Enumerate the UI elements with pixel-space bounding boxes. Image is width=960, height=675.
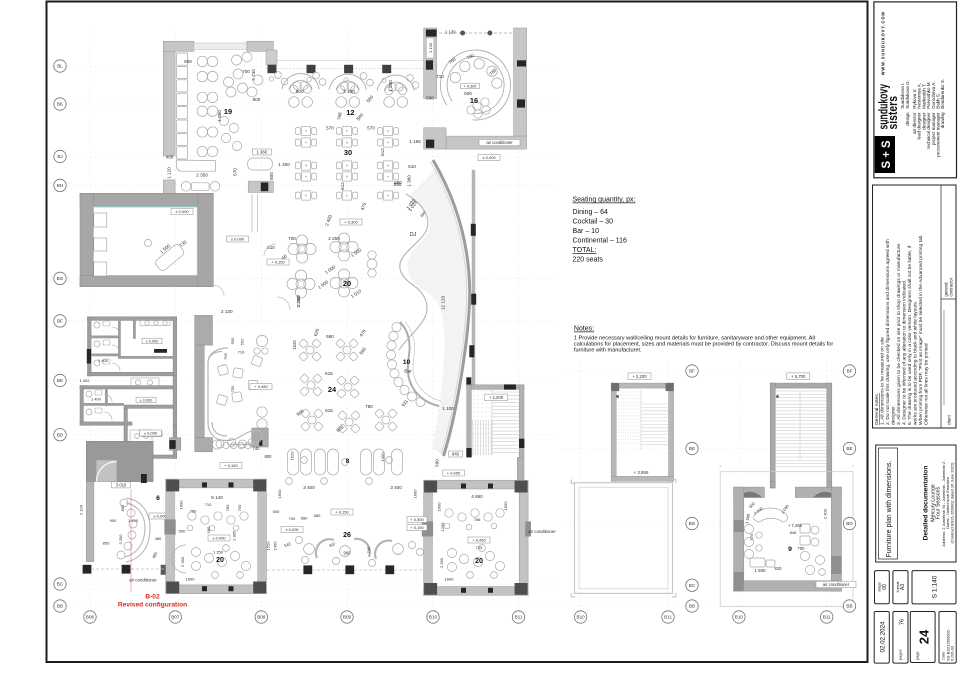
svg-text:580: 580 bbox=[314, 513, 321, 518]
svg-text:6: 6 bbox=[156, 495, 160, 502]
svg-text:TOTAL:: TOTAL: bbox=[573, 247, 597, 254]
svg-text:800: 800 bbox=[265, 454, 273, 459]
svg-text:892: 892 bbox=[120, 504, 125, 511]
svg-text:B06: B06 bbox=[86, 615, 95, 620]
svg-text:± 0,000: ± 0,000 bbox=[482, 155, 496, 160]
svg-text:± 0,000: ± 0,000 bbox=[140, 399, 153, 403]
svg-text:client: client bbox=[947, 414, 952, 425]
svg-text:2 280: 2 280 bbox=[439, 557, 444, 568]
svg-text:Continental – 116: Continental – 116 bbox=[573, 238, 627, 245]
svg-text:19: 19 bbox=[224, 107, 232, 116]
svg-text:B09: B09 bbox=[343, 615, 352, 620]
svg-text:+ 0,300: + 0,300 bbox=[410, 517, 424, 522]
svg-text:air conditioner: air conditioner bbox=[129, 578, 157, 583]
svg-text:+ 0,450: + 0,450 bbox=[447, 471, 461, 476]
svg-text:furniture with manufacturer.: furniture with manufacturer. bbox=[574, 348, 642, 354]
svg-text:BB: BB bbox=[57, 604, 63, 609]
svg-text:00: 00 bbox=[882, 584, 888, 590]
svg-text:BC: BC bbox=[57, 582, 64, 587]
svg-text:780: 780 bbox=[365, 404, 373, 409]
svg-text:26: 26 bbox=[343, 532, 351, 539]
svg-text:BB: BB bbox=[689, 604, 695, 609]
svg-text:2 250: 2 250 bbox=[296, 296, 301, 308]
svg-text:A3: A3 bbox=[900, 584, 906, 590]
svg-text:Detailed documentation: Detailed documentation bbox=[923, 466, 930, 541]
svg-text:1 385: 1 385 bbox=[232, 530, 237, 541]
svg-text:1 360: 1 360 bbox=[407, 175, 412, 187]
svg-text:B10: B10 bbox=[735, 615, 744, 620]
svg-text:B07: B07 bbox=[171, 615, 180, 620]
svg-text:615: 615 bbox=[325, 408, 333, 413]
svg-text:Cocktail – 30: Cocktail – 30 bbox=[573, 219, 614, 226]
svg-text:± 0,000: ± 0,000 bbox=[285, 527, 299, 532]
svg-text:580: 580 bbox=[301, 516, 308, 521]
svg-text:1 250: 1 250 bbox=[278, 162, 290, 167]
svg-text:1600: 1600 bbox=[277, 489, 282, 499]
svg-text:pages: pages bbox=[898, 649, 903, 660]
svg-text:3 010: 3 010 bbox=[116, 483, 127, 488]
svg-text:designer.: designer. bbox=[891, 405, 897, 425]
svg-text:design: design bbox=[905, 112, 910, 126]
svg-text:740: 740 bbox=[366, 546, 371, 553]
svg-text:+ 5,700: + 5,700 bbox=[791, 374, 806, 379]
svg-text:710: 710 bbox=[205, 502, 212, 507]
svg-text:1400: 1400 bbox=[380, 452, 385, 462]
svg-text:800: 800 bbox=[184, 59, 192, 64]
svg-text:2 130: 2 130 bbox=[221, 309, 233, 314]
svg-text:1520: 1520 bbox=[292, 340, 297, 350]
svg-text:1 100: 1 100 bbox=[442, 406, 454, 411]
svg-text:+ 0,300: + 0,300 bbox=[344, 220, 358, 225]
svg-text:612: 612 bbox=[380, 148, 385, 156]
svg-text:1 250: 1 250 bbox=[213, 550, 224, 555]
svg-text:740: 740 bbox=[253, 446, 261, 451]
svg-text:500: 500 bbox=[179, 529, 186, 534]
svg-text:750: 750 bbox=[237, 504, 242, 511]
svg-text:1 860: 1 860 bbox=[217, 110, 222, 122]
svg-text:+ 0,150: + 0,150 bbox=[224, 463, 238, 468]
svg-text:B10: B10 bbox=[577, 615, 586, 620]
svg-text:B11: B11 bbox=[664, 615, 672, 620]
svg-text:2. Do not scale this drawing,: 2. Do not scale this drawing, use only f… bbox=[885, 239, 891, 425]
svg-text:+ 3,955: + 3,955 bbox=[634, 470, 649, 475]
svg-text:30: 30 bbox=[344, 148, 352, 157]
svg-text:590: 590 bbox=[394, 180, 402, 185]
svg-text:BD: BD bbox=[689, 521, 696, 526]
svg-text:1 100: 1 100 bbox=[128, 518, 139, 523]
svg-text:BD: BD bbox=[846, 521, 853, 526]
svg-text:sisters: sisters bbox=[885, 96, 900, 130]
svg-text:Furniture plan with dimensions: Furniture plan with dimensions. bbox=[886, 461, 893, 558]
svg-text:20: 20 bbox=[343, 279, 351, 288]
svg-text:700: 700 bbox=[288, 236, 296, 241]
svg-text:700: 700 bbox=[289, 516, 296, 521]
svg-text:+ 0,300: + 0,300 bbox=[464, 85, 477, 89]
svg-text:+ 0,450: + 0,450 bbox=[472, 538, 486, 543]
svg-text:+ 0,150: + 0,150 bbox=[335, 510, 349, 515]
svg-text:± 0,000: ± 0,000 bbox=[212, 536, 226, 541]
svg-text:BF: BF bbox=[57, 319, 63, 324]
svg-text:Dining – 64: Dining – 64 bbox=[573, 209, 609, 216]
svg-text:1 Provide necessary wall/ceili: 1 Provide necessary wall/ceiling mount d… bbox=[574, 335, 815, 341]
svg-text:1 300: 1 300 bbox=[388, 80, 393, 92]
svg-text:610: 610 bbox=[408, 164, 416, 169]
svg-text:Revised configuration: Revised configuration bbox=[118, 602, 187, 609]
svg-text:3 400: 3 400 bbox=[303, 485, 315, 490]
svg-text:4. Designer to be informed of: 4. Designer to be informed of any altera… bbox=[901, 280, 907, 425]
svg-text:600: 600 bbox=[273, 509, 280, 514]
svg-text:900: 900 bbox=[110, 518, 117, 523]
svg-text:B08: B08 bbox=[257, 615, 266, 620]
svg-text:590: 590 bbox=[434, 459, 439, 467]
svg-text:± 0,000: ± 0,000 bbox=[146, 340, 159, 344]
svg-text:General notes:: General notes: bbox=[874, 393, 880, 425]
svg-text:710: 710 bbox=[238, 350, 245, 355]
svg-text:1520: 1520 bbox=[290, 451, 295, 461]
svg-text:9: 9 bbox=[788, 546, 792, 553]
svg-text:2 350: 2 350 bbox=[196, 173, 208, 178]
svg-text:1 600: 1 600 bbox=[755, 568, 767, 573]
svg-text:2 400: 2 400 bbox=[823, 508, 828, 519]
svg-text:+ 0,150: + 0,150 bbox=[410, 525, 424, 530]
svg-text:2 104: 2 104 bbox=[78, 504, 83, 515]
svg-text:550: 550 bbox=[230, 337, 235, 344]
svg-text:BH: BH bbox=[57, 183, 63, 188]
svg-text:1 400: 1 400 bbox=[98, 358, 109, 363]
svg-text:2 400: 2 400 bbox=[343, 89, 355, 94]
svg-text:BE: BE bbox=[689, 446, 695, 451]
svg-text:612: 612 bbox=[340, 182, 345, 190]
svg-text:1450: 1450 bbox=[273, 541, 278, 551]
svg-text:3 400: 3 400 bbox=[390, 485, 402, 490]
svg-text:24: 24 bbox=[917, 629, 932, 644]
svg-text:format: format bbox=[895, 581, 900, 593]
svg-text:570: 570 bbox=[367, 126, 375, 131]
svg-text:page: page bbox=[915, 651, 920, 660]
svg-text:840: 840 bbox=[452, 452, 460, 457]
svg-text:1600: 1600 bbox=[503, 501, 508, 511]
svg-text:+ 7,465: + 7,465 bbox=[788, 523, 803, 528]
svg-text:(Contract BS21-26/0002 dated 1: (Contract BS21-26/0002 dated 16 June 202… bbox=[949, 462, 954, 544]
svg-text:1 120: 1 120 bbox=[166, 167, 171, 179]
svg-text:2 730: 2 730 bbox=[251, 69, 256, 81]
svg-text:BF: BF bbox=[847, 369, 853, 374]
svg-text:BJ: BJ bbox=[57, 154, 62, 159]
svg-text:220 seats: 220 seats bbox=[573, 257, 604, 264]
svg-text:850: 850 bbox=[103, 541, 110, 546]
svg-text:BK: BK bbox=[57, 102, 64, 107]
svg-text:3 200: 3 200 bbox=[118, 534, 123, 545]
svg-text:1 185: 1 185 bbox=[409, 139, 421, 144]
svg-text:02.02.2024: 02.02.2024 bbox=[879, 621, 886, 653]
svg-text:BF: BF bbox=[689, 369, 695, 374]
svg-text:DJ: DJ bbox=[410, 232, 417, 238]
svg-text:575: 575 bbox=[749, 533, 754, 540]
svg-text:4 860: 4 860 bbox=[471, 494, 483, 499]
svg-text:900: 900 bbox=[296, 89, 304, 94]
svg-text:10: 10 bbox=[403, 359, 411, 366]
svg-text:16: 16 bbox=[470, 96, 478, 105]
svg-text:Sundukova O.: Sundukova O. bbox=[905, 80, 910, 109]
svg-text:1 130: 1 130 bbox=[428, 42, 433, 53]
svg-text:When printing from PDF, "Print: When printing from PDF, "Print as image"… bbox=[918, 234, 924, 425]
svg-text:795: 795 bbox=[223, 352, 228, 359]
svg-text:± 0,000: ± 0,000 bbox=[231, 237, 245, 242]
svg-text:580: 580 bbox=[206, 526, 211, 533]
svg-text:800: 800 bbox=[253, 97, 261, 102]
svg-text:air conditioner: air conditioner bbox=[823, 582, 850, 587]
svg-text:± 0,000: ± 0,000 bbox=[153, 514, 167, 519]
svg-text:+ 2,200: + 2,200 bbox=[489, 395, 504, 400]
svg-text:710: 710 bbox=[436, 74, 444, 79]
svg-text:Bondarenko S.: Bondarenko S. bbox=[940, 79, 945, 109]
svg-text:BL: BL bbox=[57, 64, 63, 69]
svg-text:700: 700 bbox=[242, 69, 250, 74]
svg-text:1. All dimensions to be measur: 1. All dimensions to be measured on site bbox=[880, 337, 886, 425]
svg-text:1 360: 1 360 bbox=[257, 150, 268, 155]
svg-text:760: 760 bbox=[190, 509, 197, 514]
svg-text:Notes:: Notes: bbox=[574, 326, 594, 333]
svg-text:BE: BE bbox=[846, 446, 852, 451]
svg-text:1258: 1258 bbox=[440, 522, 445, 532]
svg-text:3. All dimensions given to be: 3. All dimensions given to be checked on… bbox=[896, 243, 902, 425]
svg-text:drawing: drawing bbox=[940, 112, 945, 128]
svg-text:750: 750 bbox=[230, 385, 235, 392]
svg-text:810: 810 bbox=[267, 245, 275, 250]
svg-text:400: 400 bbox=[166, 155, 174, 160]
svg-text:1 130: 1 130 bbox=[445, 30, 456, 35]
svg-text:contractor: contractor bbox=[949, 277, 954, 296]
svg-text:+ 0,150: + 0,150 bbox=[271, 260, 285, 265]
svg-text:1520: 1520 bbox=[266, 541, 271, 551]
svg-text:6.OD-03: 6.OD-03 bbox=[950, 645, 955, 661]
svg-text:810: 810 bbox=[775, 566, 783, 571]
svg-text:S + S: S + S bbox=[879, 141, 893, 169]
svg-text:B10: B10 bbox=[429, 615, 438, 620]
svg-text:20: 20 bbox=[216, 557, 224, 564]
svg-text:2 250: 2 250 bbox=[328, 236, 340, 241]
svg-text:780: 780 bbox=[225, 504, 230, 511]
svg-text:B11: B11 bbox=[823, 615, 831, 620]
svg-text:8: 8 bbox=[346, 458, 350, 465]
svg-text:480: 480 bbox=[155, 536, 162, 541]
svg-text:570: 570 bbox=[326, 126, 334, 131]
svg-text:air conditioner: air conditioner bbox=[528, 529, 556, 534]
svg-text:1600: 1600 bbox=[413, 489, 418, 499]
svg-text:725: 725 bbox=[476, 545, 483, 550]
svg-text:± 0,000: ± 0,000 bbox=[175, 209, 189, 214]
svg-text:stage: stage bbox=[877, 582, 882, 592]
svg-text:846: 846 bbox=[790, 530, 797, 535]
svg-text:1600: 1600 bbox=[437, 502, 442, 512]
svg-text:1600: 1600 bbox=[179, 500, 184, 510]
svg-text:BB: BB bbox=[846, 604, 852, 609]
svg-text:5 140: 5 140 bbox=[211, 495, 223, 500]
svg-text:B11: B11 bbox=[515, 615, 523, 620]
svg-text:12: 12 bbox=[346, 108, 354, 117]
svg-text:BE: BE bbox=[57, 378, 63, 383]
svg-text:786: 786 bbox=[474, 517, 481, 522]
svg-text:WWW.SUNDUKOVY.COM: WWW.SUNDUKOVY.COM bbox=[881, 11, 886, 75]
svg-text:5. The drawing is to be used o: 5. The drawing is to be used only in a c… bbox=[907, 245, 913, 425]
svg-text:BD: BD bbox=[57, 432, 64, 437]
svg-text:B-02: B-02 bbox=[145, 594, 160, 601]
svg-text:1600: 1600 bbox=[445, 577, 455, 582]
svg-text:900: 900 bbox=[344, 551, 352, 556]
svg-text:2 280: 2 280 bbox=[180, 556, 185, 567]
svg-text:24: 24 bbox=[328, 385, 337, 394]
svg-text:1 400: 1 400 bbox=[91, 397, 102, 402]
svg-text:+ 2,200: + 2,200 bbox=[632, 374, 647, 379]
svg-text:552: 552 bbox=[240, 338, 245, 345]
svg-text:1 402: 1 402 bbox=[80, 378, 90, 383]
svg-text:Seating quantity, px:: Seating quantity, px: bbox=[573, 197, 636, 204]
svg-text:Otherwise not all lines may be: Otherwise not all lines may be printed bbox=[923, 343, 929, 425]
svg-text:calculations for placement, si: calculations for placement, sizes and ma… bbox=[574, 342, 833, 348]
svg-text:+ 0,450: + 0,450 bbox=[254, 384, 268, 389]
svg-text:12 120: 12 120 bbox=[441, 296, 446, 310]
svg-text:BG: BG bbox=[57, 276, 64, 281]
svg-text:800: 800 bbox=[269, 172, 274, 180]
svg-text:Bar: Bar bbox=[404, 369, 412, 375]
svg-text:570: 570 bbox=[233, 168, 238, 176]
svg-text:580: 580 bbox=[326, 334, 334, 339]
svg-text:20: 20 bbox=[475, 558, 483, 565]
svg-text:S 1:140: S 1:140 bbox=[932, 575, 939, 598]
svg-text:BC: BC bbox=[689, 583, 696, 588]
svg-text:615: 615 bbox=[325, 371, 333, 376]
svg-text:air conditioner: air conditioner bbox=[486, 140, 513, 145]
svg-text:1600: 1600 bbox=[186, 577, 196, 582]
svg-text:700: 700 bbox=[798, 546, 806, 551]
svg-text:76: 76 bbox=[900, 619, 906, 625]
svg-text:Bar – 10: Bar – 10 bbox=[573, 228, 600, 235]
svg-text:± 0,000: ± 0,000 bbox=[144, 431, 158, 436]
svg-text:works are produced according t: works are produced according to black an… bbox=[912, 301, 918, 425]
svg-text:500: 500 bbox=[426, 96, 434, 101]
